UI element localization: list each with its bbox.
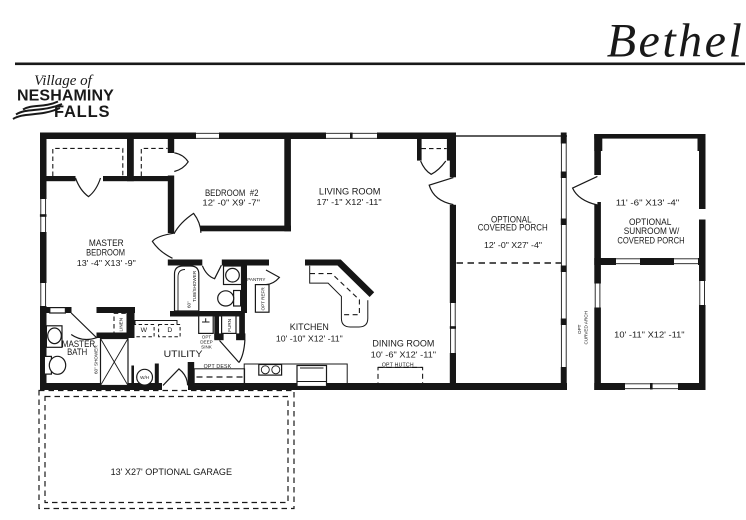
- svg-text:17' -1" X12' -11": 17' -1" X12' -11": [317, 197, 382, 207]
- svg-text:LINEN: LINEN: [119, 318, 124, 332]
- svg-text:COVERED PORCH: COVERED PORCH: [478, 222, 548, 232]
- svg-text:10' -10" X12' -11": 10' -10" X12' -11": [276, 333, 343, 343]
- svg-text:W: W: [141, 327, 148, 334]
- svg-text:BEDROOM: BEDROOM: [86, 248, 125, 258]
- svg-text:PANTRY: PANTRY: [247, 277, 265, 282]
- svg-text:Bethel: Bethel: [607, 15, 745, 68]
- svg-text:OPT: OPT: [577, 324, 582, 334]
- svg-text:MASTER: MASTER: [89, 238, 124, 248]
- svg-text:UTILITY: UTILITY: [164, 349, 203, 359]
- svg-text:TUB/SHOWER: TUB/SHOWER: [192, 270, 197, 302]
- svg-text:W/H: W/H: [140, 375, 149, 380]
- svg-text:D: D: [167, 327, 172, 334]
- svg-text:11' -6" X13' -4": 11' -6" X13' -4": [616, 198, 680, 208]
- svg-text:BEDROOM #2: BEDROOM #2: [205, 188, 259, 198]
- svg-text:CURVED ARCH: CURVED ARCH: [584, 311, 589, 344]
- svg-text:OPT REFR: OPT REFR: [261, 287, 266, 311]
- svg-text:COVERED PORCH: COVERED PORCH: [617, 236, 684, 246]
- svg-text:13' -4" X13' -9": 13' -4" X13' -9": [77, 258, 136, 268]
- svg-text:SINK: SINK: [201, 344, 213, 349]
- svg-text:10' -6" X12' -11": 10' -6" X12' -11": [371, 349, 436, 359]
- svg-text:10' -11" X12' -11": 10' -11" X12' -11": [614, 330, 684, 340]
- svg-text:FURN: FURN: [227, 319, 232, 332]
- svg-text:60": 60": [187, 301, 192, 308]
- svg-text:13' X27' OPTIONAL GARAGE: 13' X27' OPTIONAL GARAGE: [111, 467, 232, 477]
- svg-text:DINING ROOM: DINING ROOM: [372, 339, 434, 349]
- svg-text:FALLS: FALLS: [54, 103, 110, 121]
- svg-text:12' -0" X27' -4": 12' -0" X27' -4": [484, 240, 542, 250]
- svg-text:NESHAMINY: NESHAMINY: [17, 88, 114, 105]
- svg-text:LIVING ROOM: LIVING ROOM: [319, 187, 381, 197]
- svg-text:BATH: BATH: [67, 347, 87, 357]
- svg-text:KITCHEN: KITCHEN: [290, 322, 329, 332]
- svg-text:12' -0" X9' -7": 12' -0" X9' -7": [202, 198, 260, 208]
